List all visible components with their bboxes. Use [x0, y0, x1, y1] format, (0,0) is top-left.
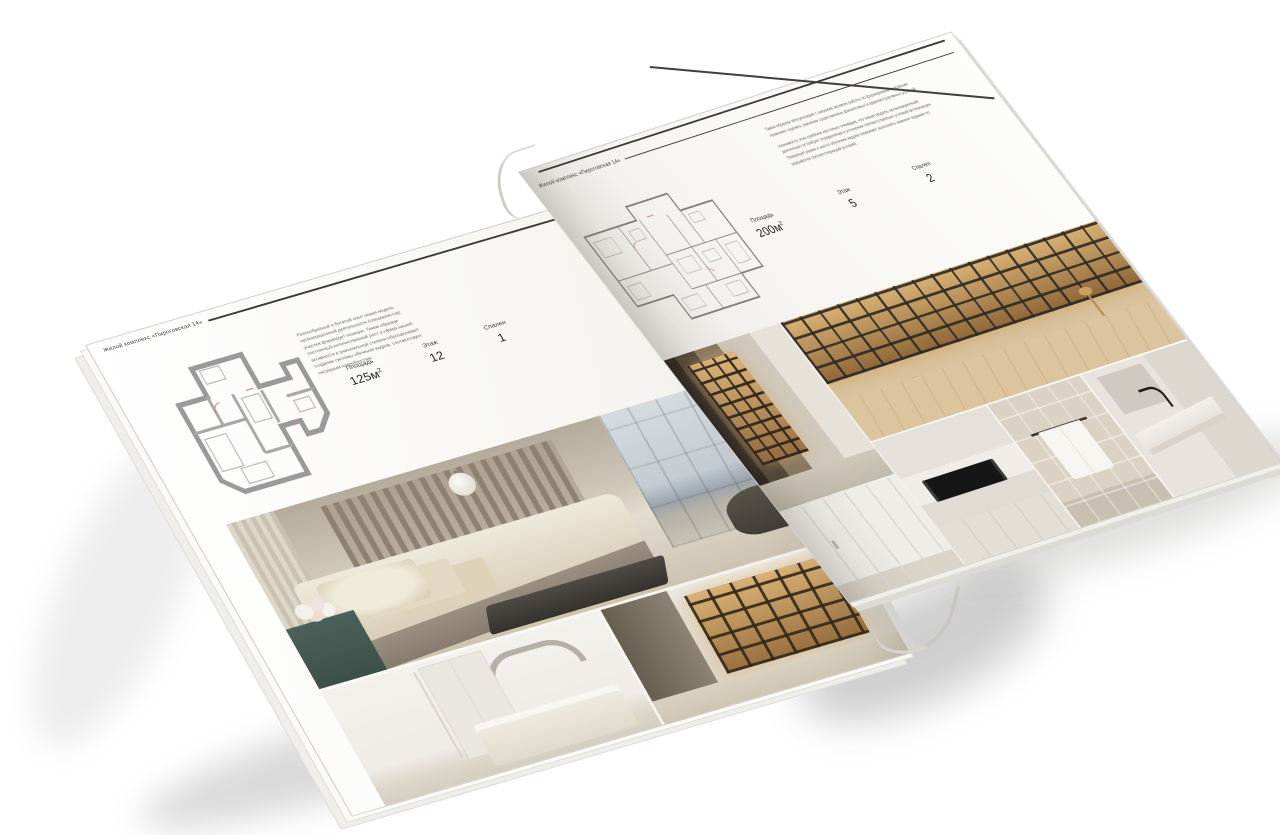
stat-floor-value: 12: [426, 349, 447, 365]
right-page-description: Таким образом консультация с широким акт…: [764, 80, 947, 173]
right-page-stats: Площадь 200м2 Этаж 5 Спален 2: [747, 161, 944, 240]
desk-chair: [897, 370, 957, 411]
right-page-title: Жилой комплекс «Пироговская 14»: [537, 158, 623, 190]
stat-bedrooms: Спален 2: [911, 161, 944, 187]
stat-floor: Этаж 5: [836, 187, 863, 211]
stat-bedrooms: Спален 1: [482, 319, 515, 346]
left-page-title: Жилой комплекс «Пироговская 14»: [102, 320, 204, 354]
stat-floor-value: 5: [842, 195, 863, 210]
stat-floor-label: Этаж: [836, 187, 852, 196]
black-cooktop: [922, 459, 1008, 503]
stat-bedrooms-value: 2: [917, 169, 944, 186]
stat-floor: Этаж 12: [421, 339, 448, 364]
towel: [1038, 420, 1114, 480]
magazine-mockup-scene: Жилой комплекс «Пироговская 14» Разнообр…: [0, 0, 1280, 835]
stat-area: Площадь 200м2: [747, 211, 789, 240]
stat-bedrooms-value: 1: [488, 329, 516, 347]
gold-floor-lamp: [1085, 291, 1125, 341]
black-faucet: [1138, 384, 1175, 413]
